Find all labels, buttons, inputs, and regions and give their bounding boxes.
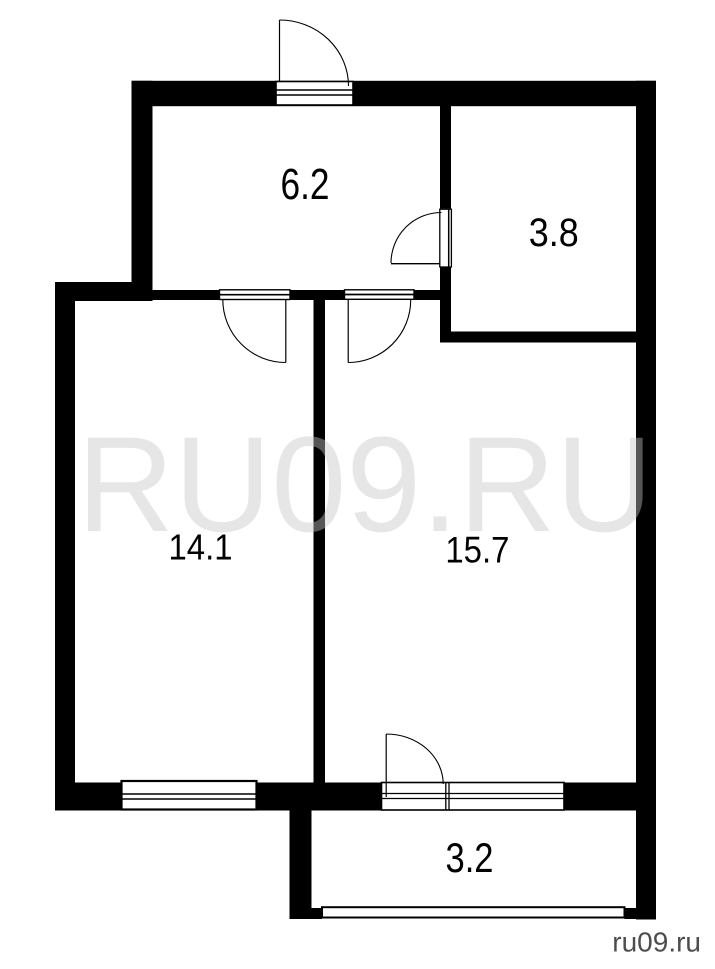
- svg-text:3.8: 3.8: [529, 211, 579, 255]
- svg-text:6.2: 6.2: [281, 161, 330, 209]
- svg-text:3.2: 3.2: [446, 834, 494, 881]
- svg-text:ru09.ru: ru09.ru: [612, 927, 701, 958]
- svg-text:RU09.RU: RU09.RU: [77, 408, 653, 560]
